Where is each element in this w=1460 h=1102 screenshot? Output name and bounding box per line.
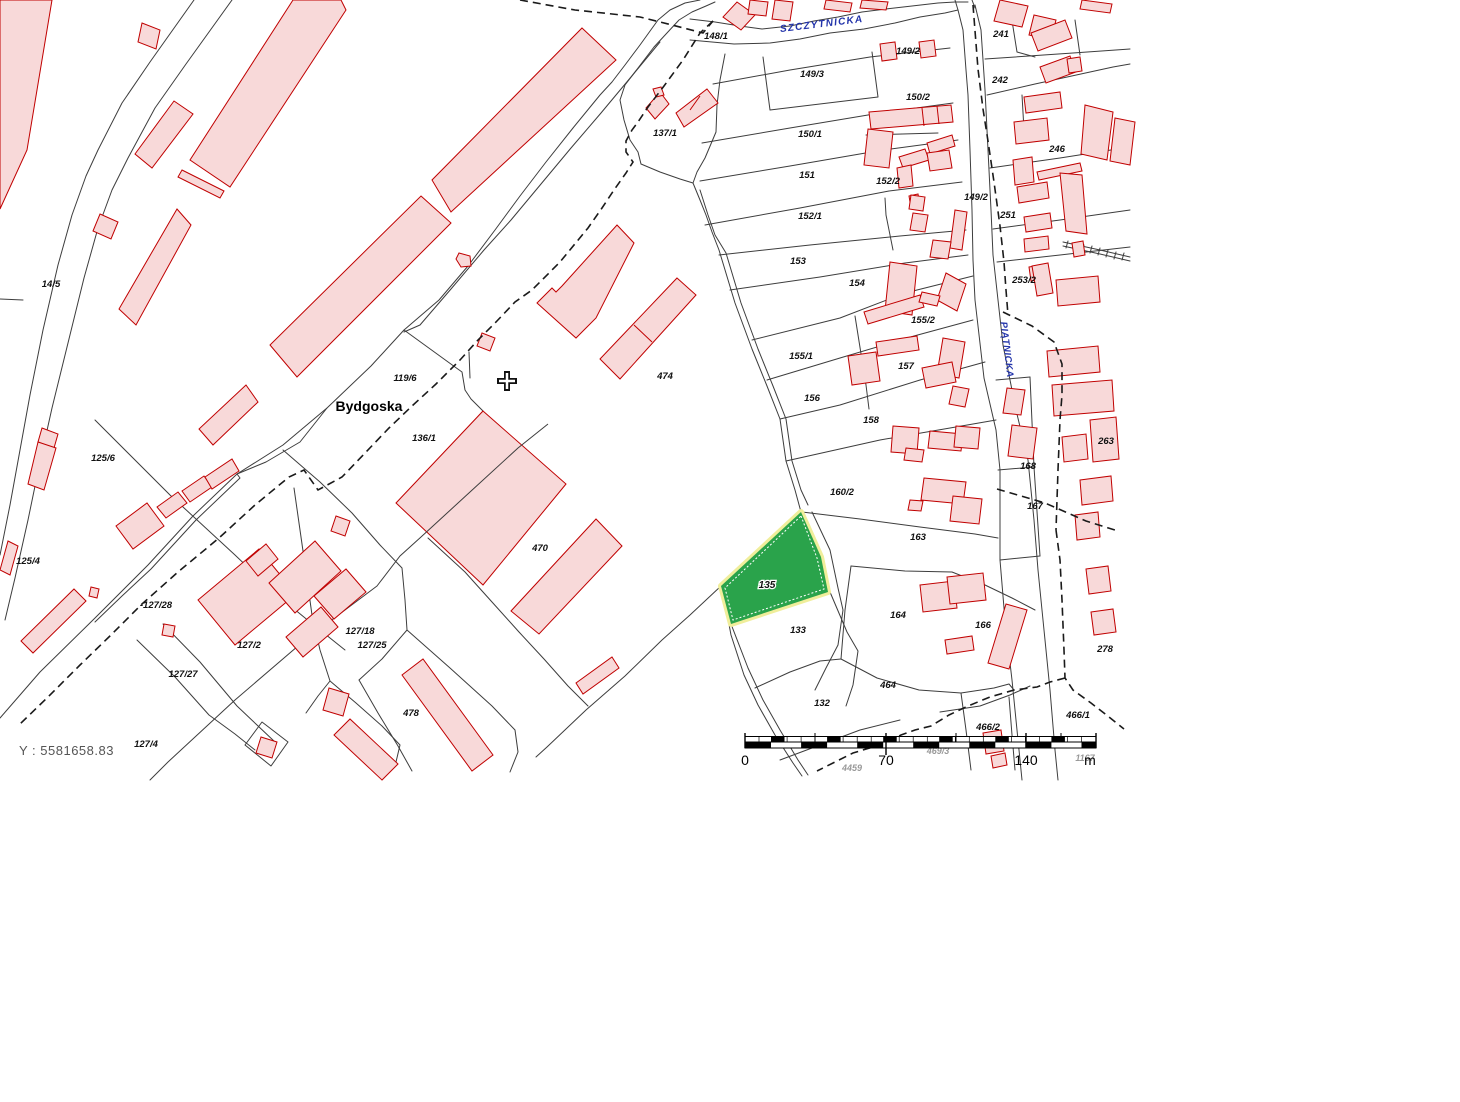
svg-text:478: 478	[402, 708, 420, 719]
svg-text:137/1: 137/1	[653, 128, 677, 139]
svg-text:Bydgoska: Bydgoska	[336, 398, 403, 414]
svg-text:155/1: 155/1	[789, 351, 813, 362]
svg-text:127/18: 127/18	[345, 626, 375, 637]
svg-text:253/2: 253/2	[1011, 275, 1036, 286]
svg-text:148/1: 148/1	[704, 31, 728, 42]
svg-text:166: 166	[975, 620, 992, 631]
svg-text:466/1: 466/1	[1065, 710, 1090, 721]
svg-text:474: 474	[656, 371, 674, 382]
svg-text:154: 154	[849, 278, 866, 289]
svg-text:127/27: 127/27	[168, 669, 198, 680]
svg-text:152/2: 152/2	[876, 176, 900, 187]
svg-text:149/2: 149/2	[896, 46, 920, 57]
svg-text:70: 70	[878, 752, 894, 768]
svg-text:Y : 5581658.83: Y : 5581658.83	[19, 743, 114, 758]
svg-text:167: 167	[1027, 501, 1044, 512]
svg-text:160/2: 160/2	[830, 487, 854, 498]
svg-text:-127/28: -127/28	[140, 600, 173, 611]
svg-text:125/4: 125/4	[16, 556, 40, 567]
svg-text:278: 278	[1096, 644, 1114, 655]
svg-text:14/5: 14/5	[42, 279, 61, 290]
svg-text:470: 470	[531, 543, 549, 554]
svg-text:156: 156	[804, 393, 821, 404]
svg-text:132: 132	[814, 698, 831, 709]
svg-text:241: 241	[992, 29, 1009, 40]
svg-text:163: 163	[910, 532, 927, 543]
svg-text:4459: 4459	[841, 763, 862, 773]
svg-text:150/2: 150/2	[906, 92, 930, 103]
svg-text:140: 140	[1014, 752, 1038, 768]
svg-text:125/6: 125/6	[91, 453, 115, 464]
svg-text:127/25: 127/25	[357, 640, 387, 651]
svg-text:242: 242	[991, 75, 1009, 86]
svg-text:152/1: 152/1	[798, 211, 822, 222]
svg-text:466/2: 466/2	[975, 722, 1000, 733]
svg-text:251: 251	[999, 210, 1016, 221]
svg-text:133: 133	[790, 625, 807, 636]
svg-text:0: 0	[741, 752, 749, 768]
svg-text:127/2: 127/2	[237, 640, 261, 651]
svg-text:246: 246	[1048, 144, 1066, 155]
svg-text:135: 135	[759, 580, 776, 591]
svg-text:464: 464	[879, 680, 897, 691]
svg-text:158: 158	[863, 415, 880, 426]
svg-text:m: m	[1084, 752, 1096, 768]
svg-text:149/3: 149/3	[800, 69, 824, 80]
svg-text:153: 153	[790, 256, 807, 267]
svg-text:151: 151	[799, 170, 815, 181]
svg-text:164: 164	[890, 610, 907, 621]
svg-text:150/1: 150/1	[798, 129, 822, 140]
svg-text:127/4: 127/4	[134, 739, 158, 750]
svg-text:155/2: 155/2	[911, 315, 935, 326]
svg-text:149/2: 149/2	[964, 192, 988, 203]
svg-text:263: 263	[1097, 436, 1115, 447]
svg-text:119/6: 119/6	[393, 373, 417, 384]
svg-text:136/1: 136/1	[412, 433, 436, 444]
svg-text:157: 157	[898, 361, 915, 372]
svg-text:168: 168	[1020, 461, 1037, 472]
